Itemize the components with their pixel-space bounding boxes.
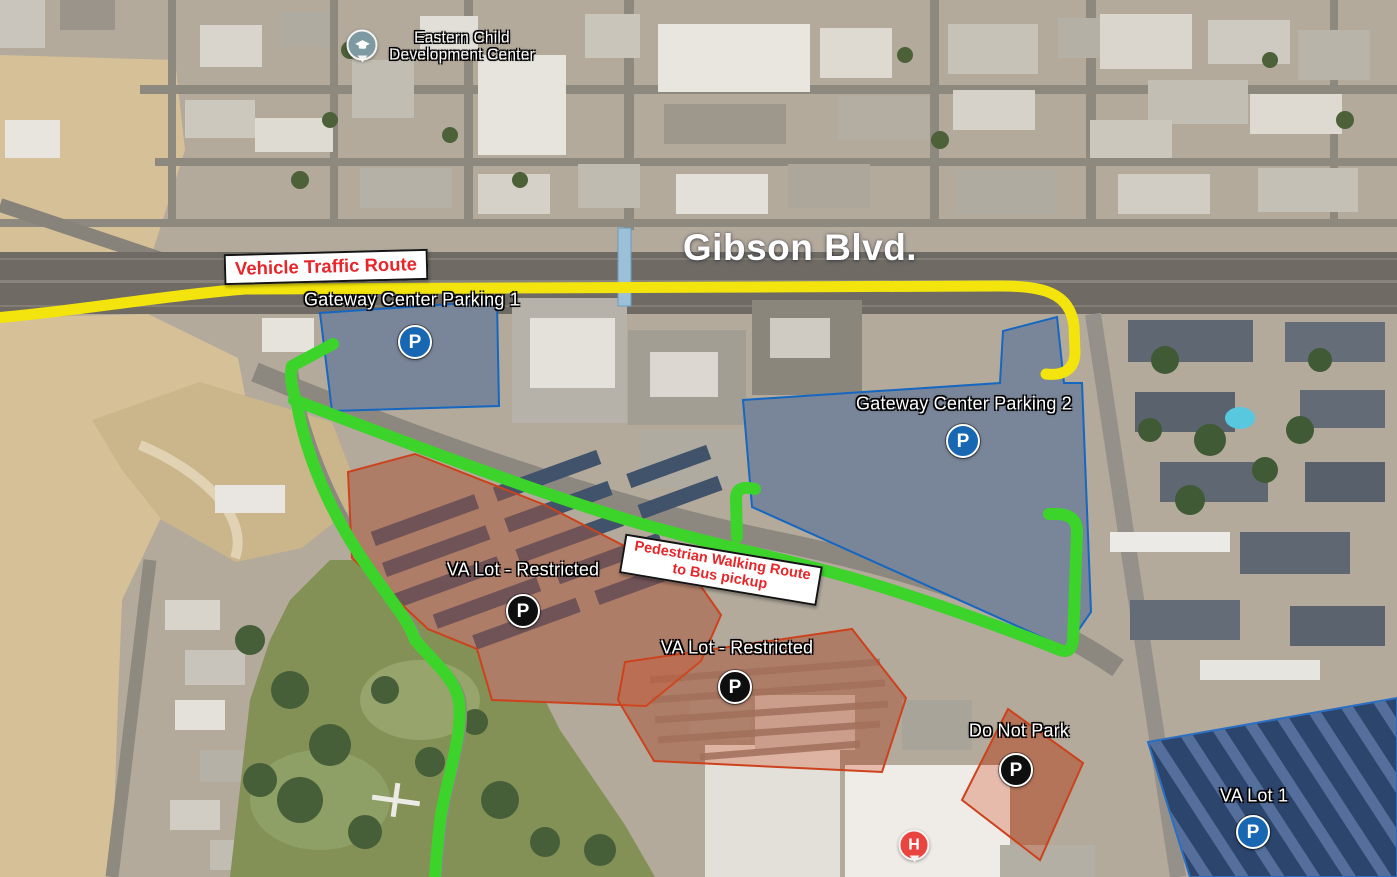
hospital-helipad-icon[interactable]: H (899, 830, 930, 861)
parking-marker-va-restricted-2[interactable]: P (718, 670, 752, 704)
school-name-line2: Development Center (389, 47, 535, 64)
school-poi-label: Eastern Child Development Center (389, 30, 535, 65)
pedestrian-bridge (618, 228, 631, 306)
vehicle-route-label: Vehicle Traffic Route (224, 249, 429, 285)
school-name-line1: Eastern Child (389, 30, 535, 47)
map-canvas: Eastern Child Development Center Gibson … (0, 0, 1397, 877)
area-label-gateway-parking-1: Gateway Center Parking 1 (304, 290, 520, 311)
parking-marker-va-lot-1[interactable]: P (1236, 815, 1270, 849)
graduation-cap-glyph (354, 37, 370, 53)
parking-marker-gateway-2[interactable]: P (946, 424, 980, 458)
area-label-va-restricted-1: VA Lot - Restricted (447, 560, 600, 581)
area-label-do-not-park: Do Not Park (969, 721, 1069, 742)
area-label-gateway-parking-2: Gateway Center Parking 2 (856, 394, 1072, 415)
parking-marker-gateway-1[interactable]: P (398, 325, 432, 359)
school-icon[interactable] (347, 30, 378, 61)
satellite-basemap (0, 0, 1397, 877)
street-name-label: Gibson Blvd. (683, 227, 917, 269)
area-label-va-lot-1: VA Lot 1 (1220, 786, 1288, 807)
area-label-va-restricted-2: VA Lot - Restricted (661, 638, 814, 659)
parking-marker-va-restricted-1[interactable]: P (506, 594, 540, 628)
parking-marker-do-not-park[interactable]: P (999, 753, 1033, 787)
